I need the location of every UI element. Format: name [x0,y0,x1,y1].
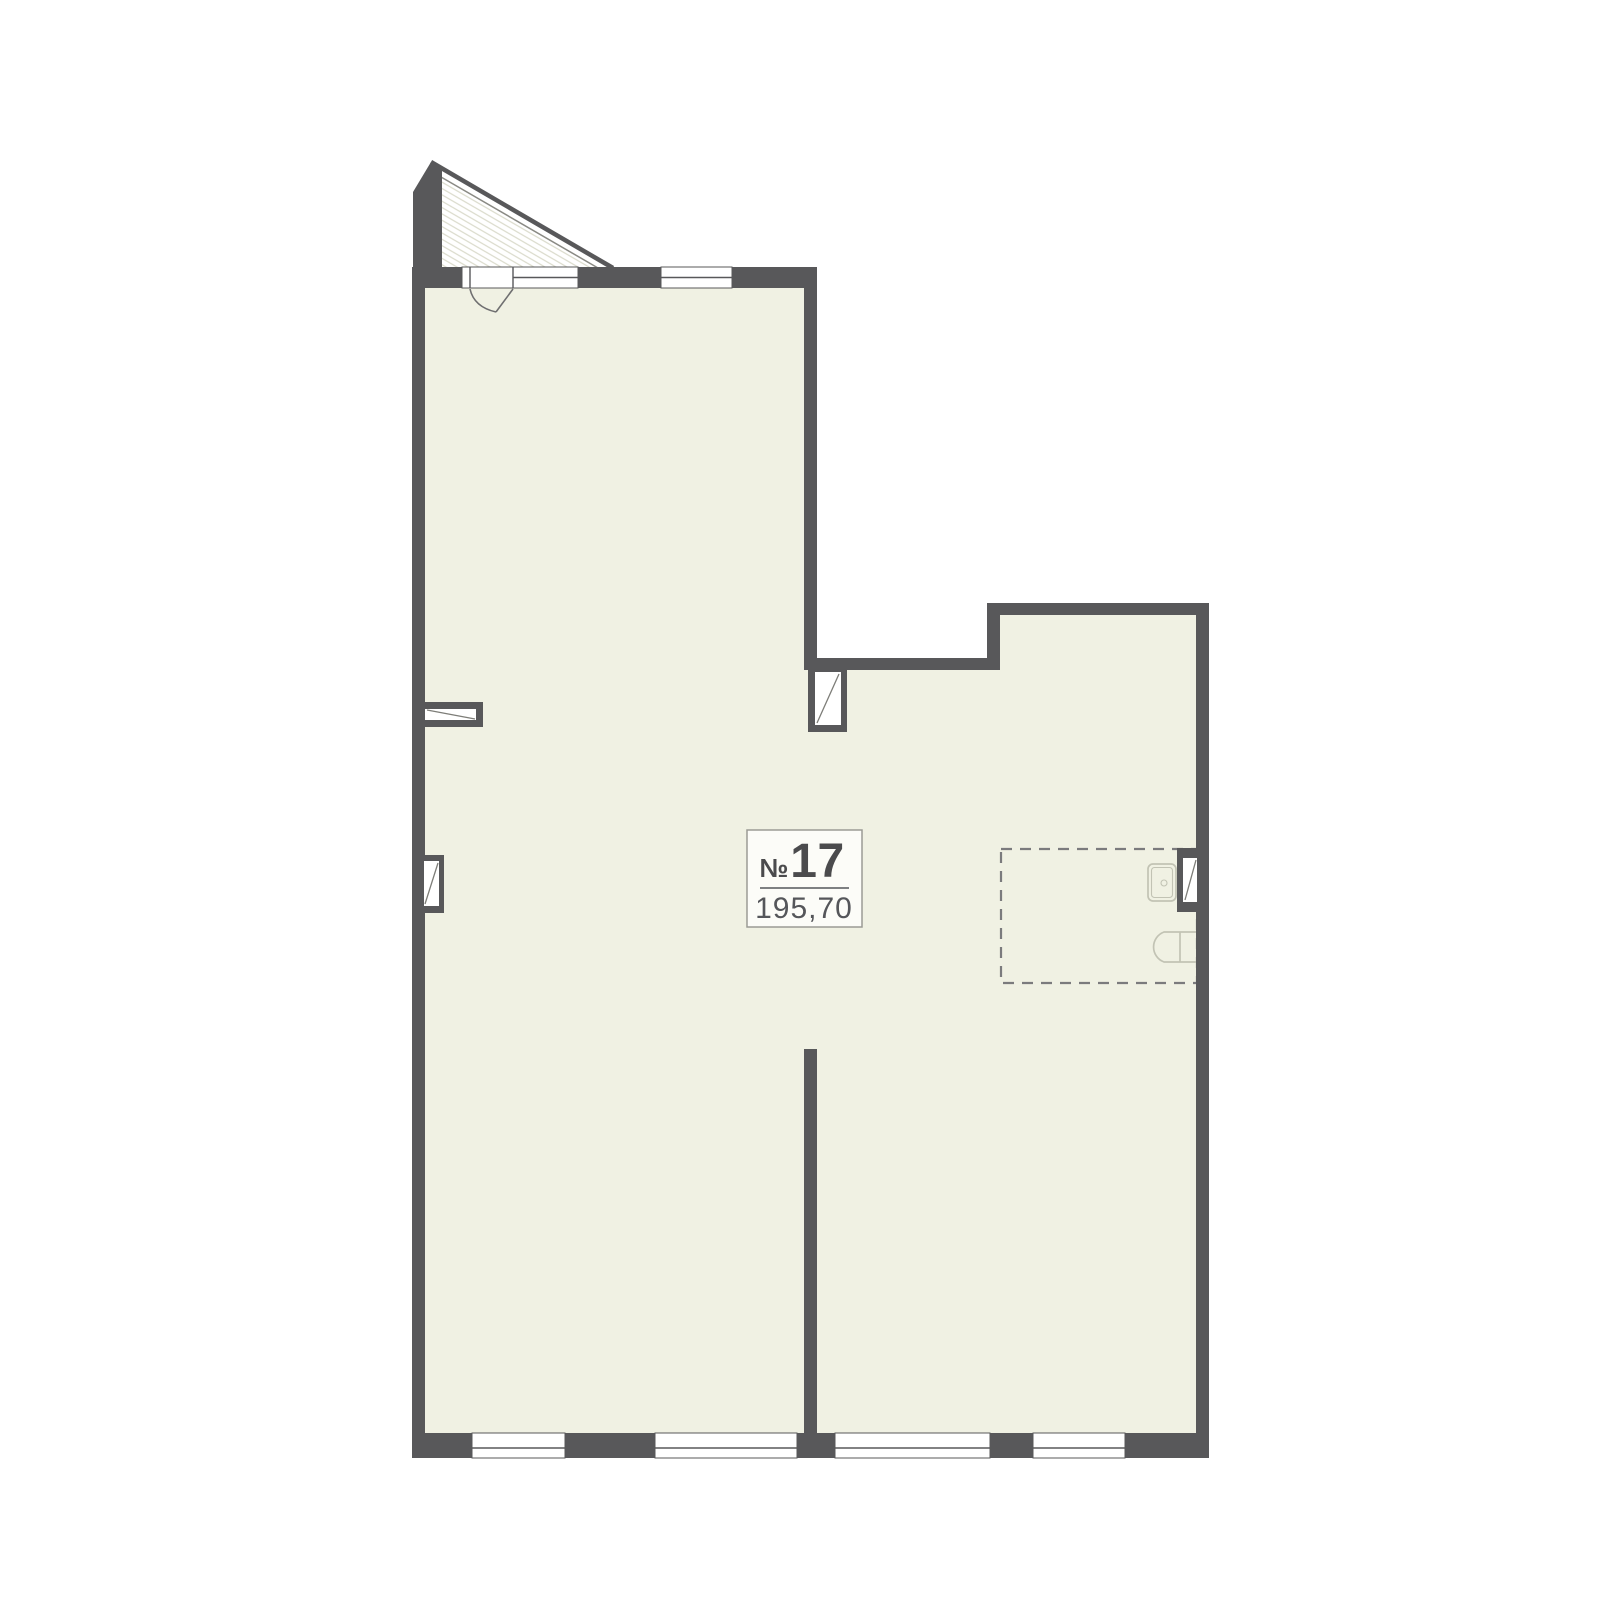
floor-plan-page: №17 195,70 [0,0,1620,1620]
window-bottom-2 [655,1433,797,1458]
vent-shaft-icon [423,855,444,913]
window-bottom-3 [835,1433,990,1458]
balcony [413,161,613,268]
wall-right-top [1000,603,1209,615]
floor-plan-canvas: №17 195,70 [0,0,1620,1620]
vent-shaft-icon [1177,848,1198,912]
wall-right [1196,603,1209,1458]
unit-area: 195,70 [755,892,853,925]
wall-step-vertical [987,603,1000,670]
wall-upper-right [804,267,817,670]
window-bottom-4 [1033,1433,1125,1458]
unit-label-card: №17 195,70 [747,830,862,927]
vent-shaft-icon [808,668,847,732]
wall-partition [804,1049,817,1433]
window-bottom-1 [472,1433,565,1458]
balcony-wall-stub [413,162,442,268]
vent-shaft-icon [423,702,483,727]
